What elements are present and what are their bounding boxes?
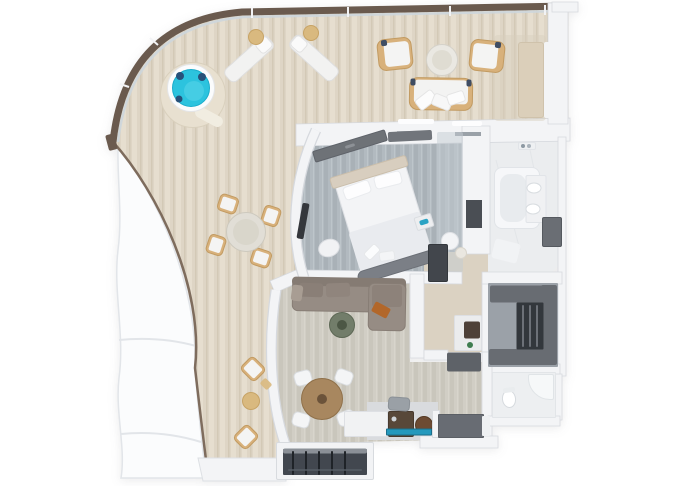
privacy-screen-edge (544, 42, 550, 118)
hot-tub-sparkle (184, 81, 204, 101)
pantry-tray (464, 322, 480, 339)
desk-chair (388, 396, 411, 412)
window-mullion-5 (344, 451, 346, 475)
tv-screen (386, 429, 432, 436)
living-coffee-table-center (337, 320, 347, 330)
side-table-1 (248, 29, 264, 45)
window-rail-line (288, 469, 362, 471)
bedroom-closet-dark (428, 244, 448, 282)
window-band-top (283, 449, 367, 454)
bath-sink-2 (526, 204, 541, 215)
wall-hall-bottom (424, 350, 448, 360)
pantry-base (447, 353, 481, 372)
bath-sink-1 (527, 183, 542, 194)
closet-rod-1 (522, 305, 524, 347)
closet-cabinet-bottom (489, 349, 555, 365)
entry-door (482, 416, 490, 436)
window-mullion-2 (305, 451, 307, 475)
window-mullion-1 (292, 451, 294, 475)
desk-cabinet-white (344, 411, 388, 437)
terrace-dining-table-top (233, 219, 259, 245)
armchair-2-shadow (495, 42, 502, 49)
window-mullion-4 (331, 451, 333, 475)
bedroom-side-table (455, 247, 467, 259)
wall-right (558, 137, 566, 376)
wall-terrace-right (548, 3, 568, 124)
armchair-1-cushion (383, 41, 410, 67)
loveseat-shadow-2 (467, 80, 472, 87)
outdoor-coffee-table-top (432, 50, 452, 70)
pantry-bottle (467, 342, 473, 348)
loveseat-shadow-1 (411, 79, 416, 86)
hot-tub-seat-2 (198, 73, 206, 81)
wall-top-right-notch (552, 2, 578, 12)
desk-knob (392, 417, 397, 422)
shower-door (542, 217, 562, 247)
wall-living-right (410, 274, 424, 358)
sofa-pillow (290, 284, 303, 301)
closet-rod-2 (529, 305, 531, 347)
entry-floor (438, 414, 484, 438)
terrace-side-table-south (242, 392, 260, 410)
deck-curb (198, 458, 286, 481)
hot-tub-seat-3 (176, 96, 183, 103)
bath-bottle-1 (521, 144, 525, 148)
hot-tub-seat-1 (176, 72, 184, 80)
armchair-1-shadow (381, 40, 388, 47)
side-table-2 (303, 25, 319, 41)
wall-bed-bath-divider (462, 126, 490, 254)
wall-niche (466, 200, 482, 228)
bath-bottle-2 (527, 144, 531, 148)
privacy-screen (518, 42, 544, 118)
closet-rod-3 (536, 305, 538, 347)
dining-table-base (317, 394, 327, 404)
floorplan-canvas (0, 0, 680, 486)
sofa-cushion-2 (326, 283, 350, 298)
bathtub-basin (500, 174, 526, 222)
window-mullion-3 (318, 451, 320, 475)
